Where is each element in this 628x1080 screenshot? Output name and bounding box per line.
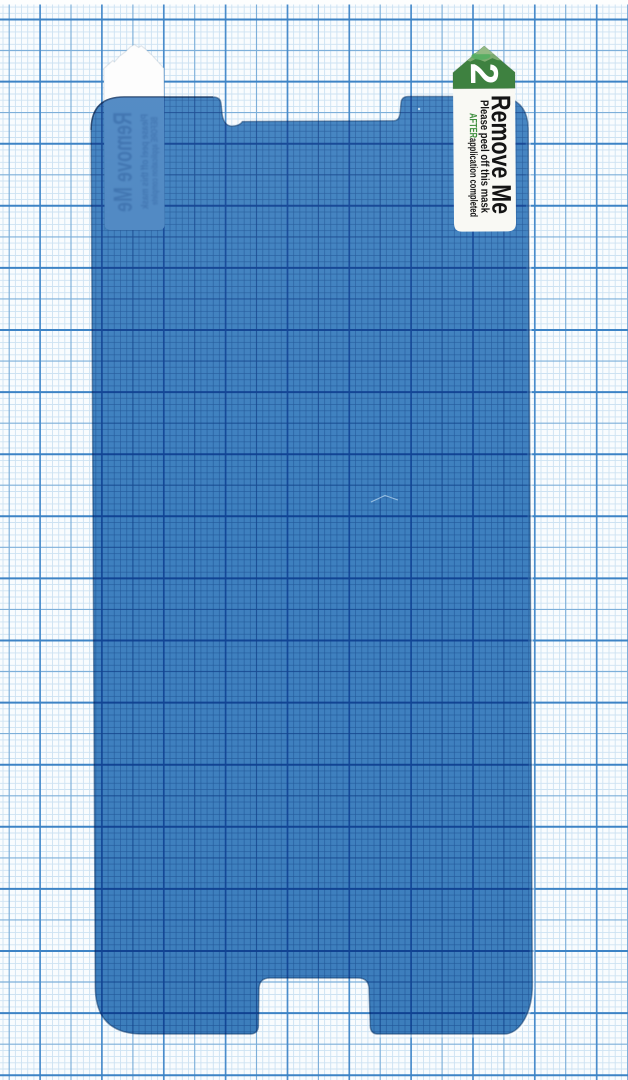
- svg-text:AFTERapplication completed: AFTERapplication completed: [467, 113, 480, 217]
- svg-text:BEFORE application complete: BEFORE application complete: [149, 117, 159, 205]
- svg-text:Remove Me: Remove Me: [107, 112, 137, 212]
- svg-text:2: 2: [462, 63, 505, 85]
